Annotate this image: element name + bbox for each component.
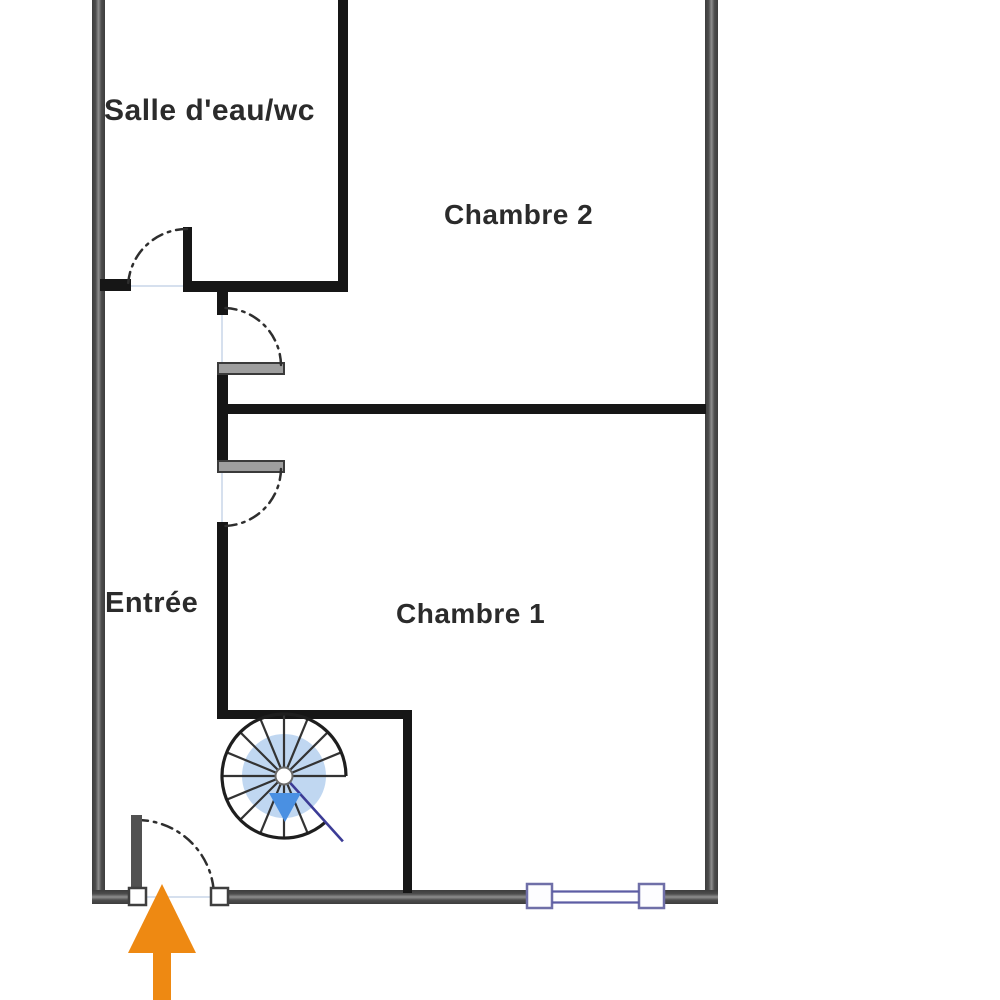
room-label-bathroom-text: Salle d'eau/wc — [104, 96, 315, 126]
bedroom-divider-wall — [222, 404, 706, 414]
room-label-entrance: Entrée — [105, 589, 198, 618]
room-label-bedroom1-text: Chambre 1 — [396, 598, 545, 629]
bedroom1-door-leaf — [218, 461, 284, 472]
staircase-inner-disc — [242, 734, 326, 818]
room-label-bedroom1: Chambre 1 — [396, 600, 545, 628]
outer-wall-bottom-seg2 — [227, 890, 528, 904]
corridor-wall-seg3 — [217, 522, 228, 719]
corridor-wall-seg1 — [217, 290, 228, 315]
staircase-center-post — [276, 768, 293, 785]
outer-wall-bottom-seg1 — [92, 890, 132, 904]
floor-plan: Salle d'eau/wc Chambre 2 Entrée Chambre … — [0, 0, 1000, 1000]
window-post-right — [639, 884, 664, 908]
entrance-door-post-left — [129, 888, 146, 905]
bathroom-right-wall — [338, 0, 348, 292]
room-label-bedroom2-text: Chambre 2 — [444, 199, 593, 230]
bedroom1-bottom-wall — [217, 710, 412, 719]
door-swing-arc-entrance — [137, 820, 214, 896]
outer-wall-bottom-seg3 — [663, 890, 718, 904]
door-swing-arc-bedroom2 — [223, 308, 281, 365]
window-post-left — [527, 884, 552, 908]
entry-arrow-head — [128, 884, 196, 953]
floor-plan-drawing — [0, 0, 1000, 1000]
entrance-door-leaf — [131, 815, 142, 892]
corridor-wall-seg2 — [217, 373, 228, 470]
entrance-door-post-right — [211, 888, 228, 905]
outer-wall-right — [705, 0, 718, 904]
window-icon — [527, 884, 664, 908]
room-label-bathroom: Salle d'eau/wc — [104, 96, 348, 126]
staircase-outline-arc — [222, 714, 346, 838]
room-label-bedroom2: Chambre 2 — [444, 201, 593, 229]
staircase-spokes — [222, 714, 346, 838]
entry-arrow-stem — [153, 950, 171, 1000]
bathroom-bottom-wall — [183, 281, 348, 292]
entry-arrow-icon — [128, 884, 196, 1000]
door-swing-arc-bedroom1 — [223, 469, 281, 526]
bathroom-bottom-wall-stub — [100, 279, 131, 291]
bedroom2-door-leaf — [218, 363, 284, 374]
door-swing-arc-bathroom — [128, 229, 187, 288]
staircase-direction-line — [284, 776, 343, 841]
spiral-staircase-icon — [222, 714, 346, 841]
bedroom1-left-wall — [403, 710, 412, 893]
outer-wall-left — [92, 0, 105, 904]
staircase-down-arrow — [269, 793, 301, 822]
room-label-entrance-text: Entrée — [105, 587, 198, 619]
bathroom-door-leaf — [183, 227, 192, 292]
